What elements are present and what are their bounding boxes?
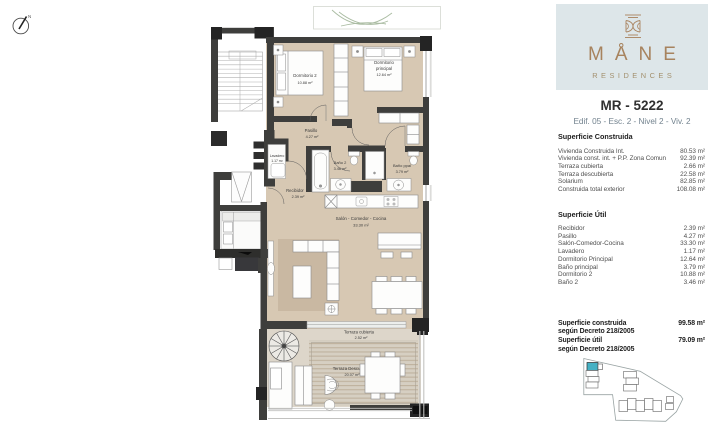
- svg-text:Lavadero: Lavadero: [270, 154, 285, 158]
- svg-text:2.39 m²: 2.39 m²: [292, 195, 306, 199]
- svg-text:Pasillo: Pasillo: [305, 128, 318, 133]
- svg-text:10.88 m²: 10.88 m²: [298, 81, 314, 85]
- svg-text:20.07 m²: 20.07 m²: [345, 373, 361, 377]
- svg-text:4.27 m²: 4.27 m²: [306, 135, 320, 139]
- svg-text:principal: principal: [376, 66, 392, 71]
- svg-text:33.30 m²: 33.30 m²: [353, 223, 369, 228]
- svg-text:12.64 m²: 12.64 m²: [377, 73, 393, 77]
- svg-text:3.79 m²: 3.79 m²: [396, 170, 410, 174]
- svg-text:Dormitorio: Dormitorio: [374, 60, 394, 65]
- svg-text:Recibidor: Recibidor: [286, 188, 304, 193]
- svg-text:1.17 m²: 1.17 m²: [271, 159, 283, 163]
- svg-text:Baño ppal: Baño ppal: [393, 163, 411, 168]
- svg-text:Salón - Comedor - Cocina: Salón - Comedor - Cocina: [336, 216, 387, 221]
- svg-text:Terraza cubierta: Terraza cubierta: [344, 330, 375, 335]
- svg-text:Dormitorio 2: Dormitorio 2: [293, 73, 317, 78]
- svg-text:N: N: [28, 14, 31, 19]
- svg-text:2.52 m²: 2.52 m²: [355, 336, 369, 340]
